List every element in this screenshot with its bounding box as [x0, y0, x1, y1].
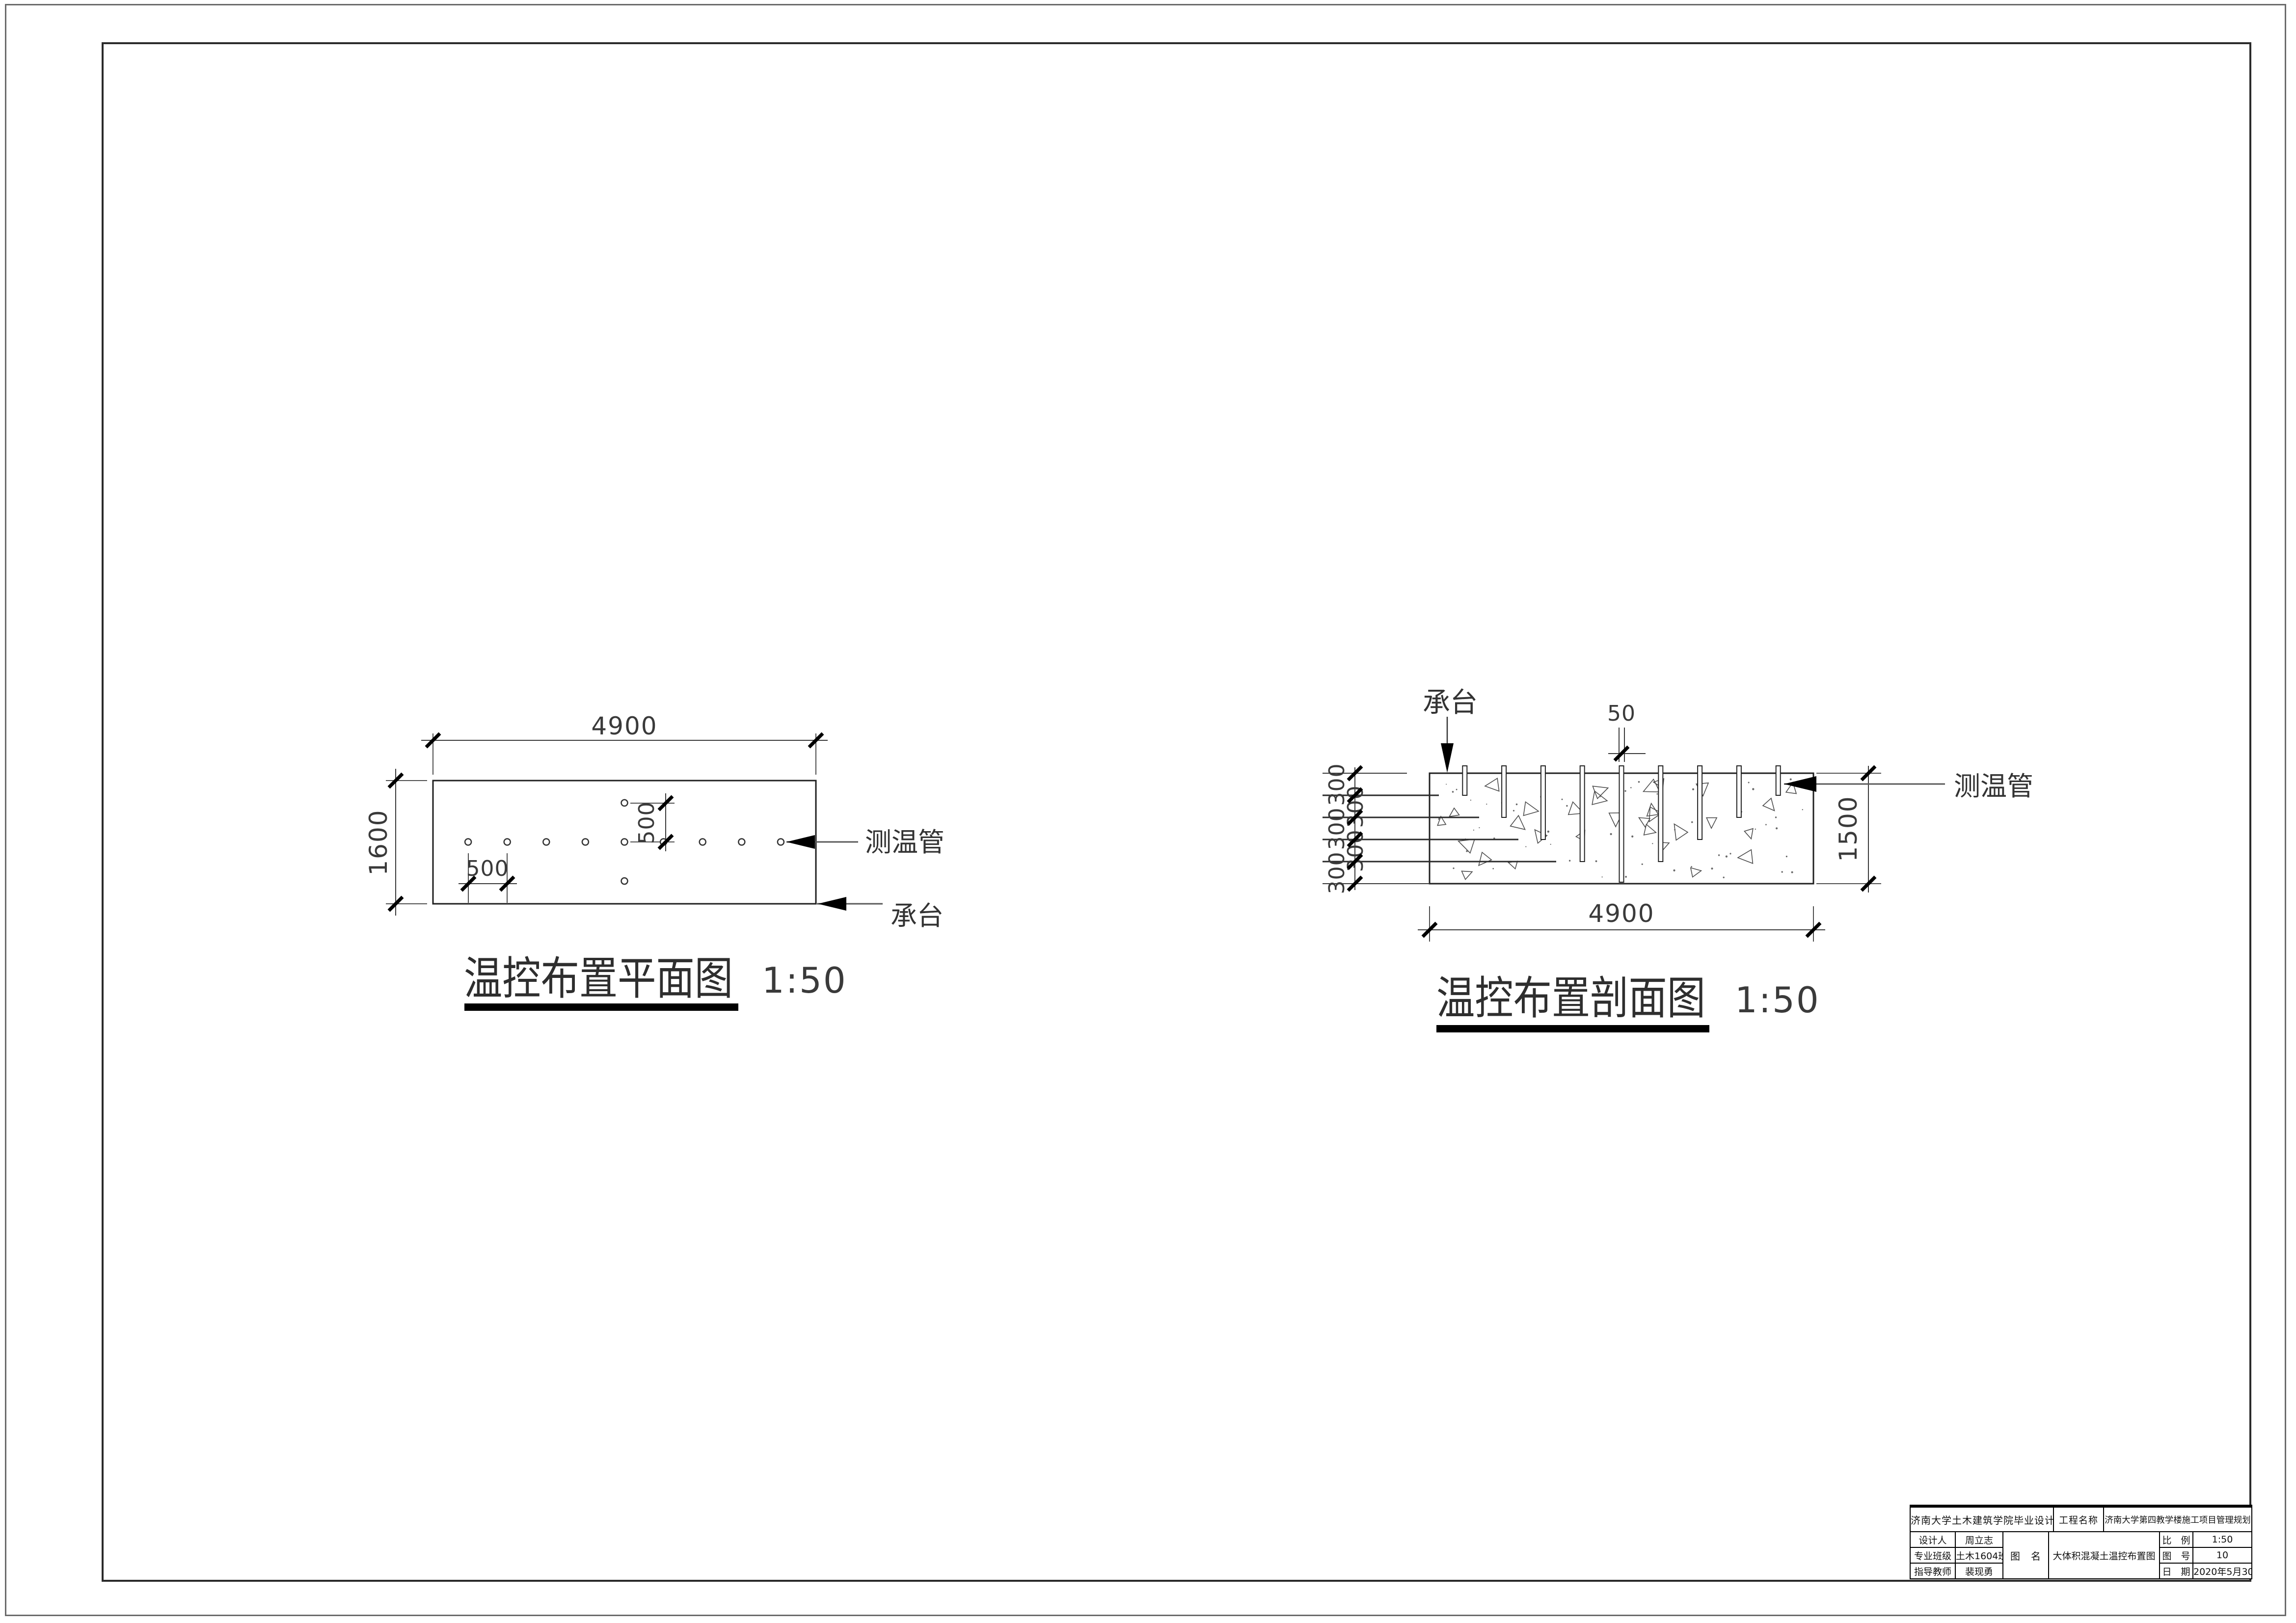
measuring-tube — [1698, 766, 1702, 839]
sensor-circle — [465, 839, 471, 845]
section-view: 承台 50 300 300 300 300 300 1500 4900 — [1323, 687, 2033, 1032]
section-title: 温控布置剖面图 — [1436, 972, 1705, 1025]
leader-arrow-icon — [1784, 776, 1816, 792]
concrete-dot — [1711, 867, 1713, 869]
measuring-tube — [1620, 766, 1624, 882]
titleblock-designer-name: 周立志 — [1955, 1532, 2003, 1547]
plan-height-dimension: 1600 — [364, 809, 393, 875]
section-scale: 1:50 — [1735, 979, 1820, 1021]
sensor-circle — [700, 839, 706, 845]
titleblock-class-name: 土木1604班 — [1955, 1547, 2003, 1563]
concrete-dot — [1673, 869, 1675, 871]
titleblock-scale-label: 比 例 — [2160, 1532, 2193, 1547]
titleblock-advisor-label: 指导教师 — [1910, 1563, 1955, 1579]
title-underline — [1436, 1025, 1709, 1032]
concrete-dot — [1691, 866, 1692, 867]
concrete-dot — [1446, 784, 1447, 785]
concrete-dot — [1782, 871, 1783, 872]
measuring-tube — [1462, 766, 1467, 795]
concrete-dot — [1562, 799, 1563, 800]
concrete-dot — [1466, 850, 1468, 852]
concrete-triangle — [1479, 852, 1491, 866]
tube-diameter-dimension: 50 — [1607, 701, 1636, 726]
concrete-dot — [1569, 860, 1570, 862]
titleblock-advisor-name: 裴现勇 — [1955, 1563, 2003, 1579]
concrete-dot — [1547, 831, 1549, 833]
titleblock-scale-value: 1:50 — [2193, 1532, 2252, 1547]
concrete-dot — [1786, 856, 1787, 857]
concrete-dot — [1755, 829, 1756, 830]
concrete-dot — [1610, 833, 1612, 835]
plan-view: 4900 1600 500 500 测温管 承台 温控布置平面图 1:50 — [364, 712, 945, 1011]
titleblock-date-label: 日 期 — [2160, 1563, 2193, 1579]
concrete-dot — [1748, 782, 1750, 784]
concrete-dot — [1438, 818, 1440, 820]
concrete-triangle — [1744, 829, 1753, 839]
section-width-dimension: 4900 — [1588, 899, 1654, 928]
concrete-dot — [1602, 876, 1603, 877]
concrete-triangle — [1691, 868, 1702, 877]
title-block: 济南大学土木建筑学院毕业设计 工程名称 济南大学第四教学楼施工项目管理规划 设计… — [1910, 1505, 2252, 1579]
concrete-dot — [1599, 796, 1601, 797]
concrete-dot — [1486, 804, 1487, 805]
concrete-dot — [1473, 830, 1474, 831]
concrete-dot — [1631, 836, 1633, 838]
sensor-circle — [621, 878, 628, 884]
concrete-triangle — [1647, 804, 1658, 816]
leader-arrow-icon — [818, 897, 846, 911]
concrete-triangle — [1763, 798, 1775, 811]
concrete-dot — [1752, 788, 1754, 790]
concrete-dot — [1516, 804, 1518, 806]
sensor-circle — [543, 839, 549, 845]
concrete-triangle — [1738, 850, 1753, 864]
sensor-circle — [504, 839, 511, 845]
concrete-triangle — [1592, 791, 1607, 805]
concrete-dot — [1791, 871, 1793, 873]
concrete-dot — [1452, 791, 1454, 793]
titleblock-drawing-label: 图 名 — [2003, 1532, 2049, 1579]
section-cap-label: 承台 — [1423, 687, 1478, 719]
titleblock-designer-label: 设计人 — [1910, 1532, 1955, 1547]
sensor-circle — [582, 839, 589, 845]
concrete-dot — [1630, 787, 1632, 788]
concrete-dot — [1692, 788, 1694, 790]
plan-sensor-points — [465, 800, 784, 884]
concrete-dot — [1726, 856, 1728, 858]
titleblock-project-label: 工程名称 — [2053, 1506, 2104, 1532]
sensor-circle — [778, 839, 784, 845]
concrete-triangle — [1449, 808, 1459, 816]
plan-cap-label: 承台 — [891, 900, 944, 931]
concrete-dot — [1513, 810, 1514, 811]
plan-title: 温控布置平面图 — [464, 952, 733, 1005]
concrete-dot — [1691, 821, 1693, 823]
concrete-dot — [1492, 868, 1494, 869]
concrete-dot — [1566, 805, 1567, 807]
sensor-circle — [621, 839, 628, 845]
concrete-dot — [1718, 854, 1720, 856]
leader-arrow-icon — [786, 835, 815, 849]
cad-drawing-canvas: 4900 1600 500 500 测温管 承台 温控布置平面图 1:50 — [0, 0, 2296, 1623]
concrete-dot — [1674, 829, 1675, 831]
plan-scale: 1:50 — [762, 960, 847, 1001]
measuring-tube — [1658, 766, 1663, 862]
concrete-dot — [1638, 781, 1640, 783]
concrete-dot — [1642, 864, 1643, 865]
depth-step-dimension: 300 — [1324, 852, 1350, 894]
plan-tube-label: 测温管 — [865, 827, 945, 858]
concrete-dot — [1479, 827, 1480, 828]
concrete-dot — [1652, 843, 1653, 844]
concrete-triangle — [1644, 824, 1656, 835]
concrete-dot — [1656, 793, 1658, 795]
sensor-circle — [738, 839, 745, 845]
titleblock-school: 济南大学土木建筑学院毕业设计 — [1910, 1506, 2053, 1532]
title-underline — [464, 1003, 738, 1011]
sensor-circle — [621, 800, 628, 806]
titleblock-date-value: 2020年5月30日 — [2193, 1563, 2252, 1579]
measuring-tube — [1541, 766, 1545, 839]
titleblock-number-value: 10 — [2193, 1547, 2252, 1563]
concrete-triangle — [1511, 815, 1525, 830]
plan-width-dimension: 4900 — [591, 712, 657, 740]
concrete-triangle — [1706, 818, 1717, 829]
concrete-dot — [1525, 846, 1526, 847]
concrete-dot — [1453, 867, 1454, 869]
measuring-tube — [1737, 766, 1741, 817]
concrete-dot — [1723, 877, 1725, 878]
concrete-dot — [1765, 824, 1767, 825]
concrete-dot — [1775, 816, 1777, 818]
concrete-dot — [1625, 876, 1627, 878]
concrete-triangle — [1485, 778, 1499, 791]
concrete-dot — [1776, 827, 1778, 829]
measuring-tube — [1580, 766, 1585, 862]
concrete-dot — [1595, 860, 1597, 862]
section-height-dimension: 1500 — [1834, 795, 1863, 862]
concrete-dot — [1550, 844, 1551, 845]
titleblock-class-label: 专业班级 — [1910, 1547, 1955, 1563]
measuring-tube — [1502, 766, 1506, 817]
titleblock-number-label: 图 号 — [2160, 1547, 2193, 1563]
titleblock-drawing-name: 大体积混凝土温控布置图 — [2049, 1532, 2160, 1579]
titleblock-project-name: 济南大学第四教学楼施工项目管理规划 — [2104, 1506, 2252, 1532]
concrete-dot — [1456, 789, 1458, 790]
measuring-tube — [1776, 766, 1781, 795]
concrete-dot — [1802, 809, 1803, 810]
concrete-triangle — [1462, 871, 1472, 879]
section-tube-label: 测温管 — [1954, 771, 2033, 802]
concrete-dot — [1790, 779, 1792, 781]
concrete-dot — [1470, 800, 1471, 801]
concrete-triangle — [1523, 802, 1539, 815]
concrete-triangle — [1674, 824, 1688, 840]
concrete-dot — [1729, 853, 1731, 854]
plan-offset-dimension: 500 — [634, 802, 659, 844]
leader-arrow-icon — [1441, 743, 1454, 773]
concrete-dot — [1624, 790, 1626, 792]
